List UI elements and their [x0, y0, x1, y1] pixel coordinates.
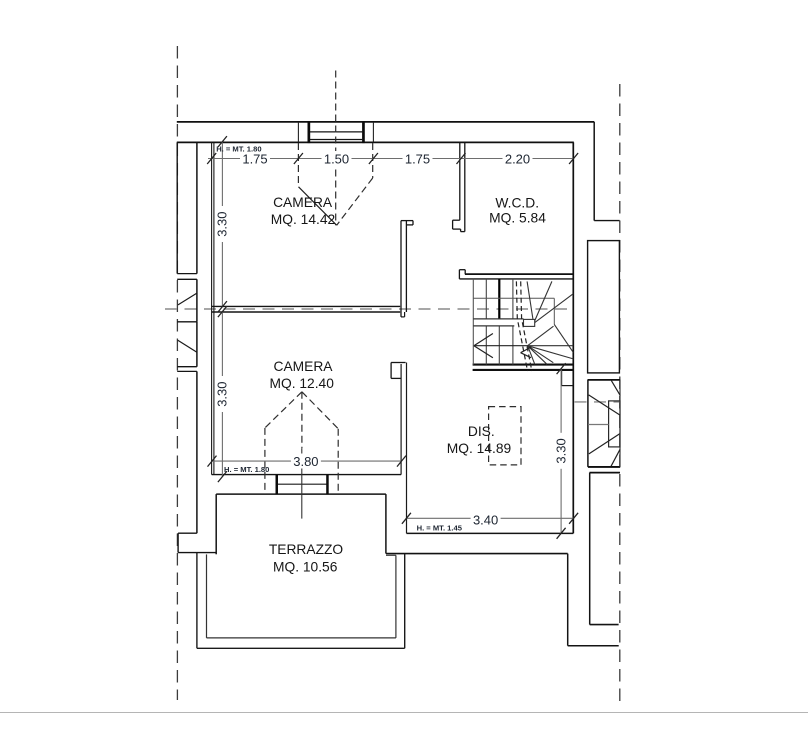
svg-text:MQ. 14.89: MQ. 14.89	[447, 441, 512, 456]
svg-text:DIS.: DIS.	[468, 424, 495, 439]
svg-text:2.20: 2.20	[505, 151, 530, 166]
svg-text:MQ. 10.56: MQ. 10.56	[273, 559, 338, 574]
svg-text:MQ. 5.84: MQ. 5.84	[489, 211, 546, 226]
svg-text:1.75: 1.75	[405, 151, 430, 166]
svg-text:H. = MT. 1.45: H. = MT. 1.45	[417, 524, 463, 533]
svg-text:TERRAZZO: TERRAZZO	[269, 542, 344, 557]
svg-text:CAMERA: CAMERA	[273, 195, 333, 210]
svg-text:3.30: 3.30	[553, 438, 568, 463]
svg-text:H. = MT. 1.80: H. = MT. 1.80	[224, 465, 269, 474]
svg-text:3.80: 3.80	[293, 454, 318, 469]
svg-text:3.40: 3.40	[473, 513, 498, 528]
svg-text:MQ. 12.40: MQ. 12.40	[269, 376, 334, 391]
svg-text:H. = MT. 1.80: H. = MT. 1.80	[216, 144, 261, 153]
svg-text:W.C.D.: W.C.D.	[495, 196, 539, 211]
svg-text:3.30: 3.30	[214, 211, 229, 236]
svg-text:1.50: 1.50	[324, 151, 349, 166]
svg-text:CAMERA: CAMERA	[273, 359, 333, 374]
svg-text:1.75: 1.75	[242, 151, 267, 166]
svg-text:MQ. 14.42: MQ. 14.42	[271, 212, 335, 227]
svg-text:3.30: 3.30	[214, 381, 229, 406]
